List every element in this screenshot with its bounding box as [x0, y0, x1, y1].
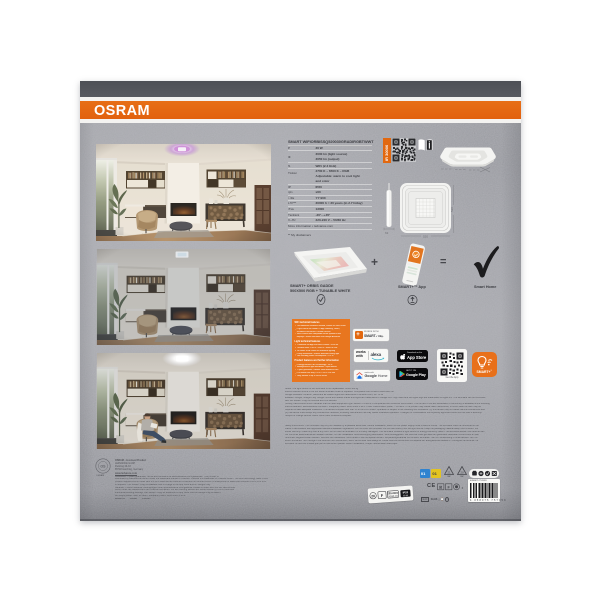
svg-text:☒: ☒ [438, 486, 442, 490]
svg-text:PAP: PAP [460, 475, 464, 478]
svg-text:F: F [447, 486, 450, 490]
svg-text:63: 63 [385, 231, 389, 235]
svg-text:20: 20 [371, 494, 375, 498]
svg-text:F: F [381, 492, 384, 497]
svg-text:520: 520 [450, 207, 454, 212]
svg-text:520: 520 [423, 235, 428, 239]
svg-text:50/60 Hz: 50/60 Hz [388, 494, 399, 498]
svg-text:♻: ♻ [461, 486, 463, 490]
svg-text:20: 20 [460, 470, 464, 474]
svg-text:OS: OS [100, 464, 106, 468]
svg-text:21: 21 [447, 471, 451, 475]
svg-text:IP20: IP20 [403, 490, 409, 494]
svg-text:PAP: PAP [447, 475, 451, 477]
